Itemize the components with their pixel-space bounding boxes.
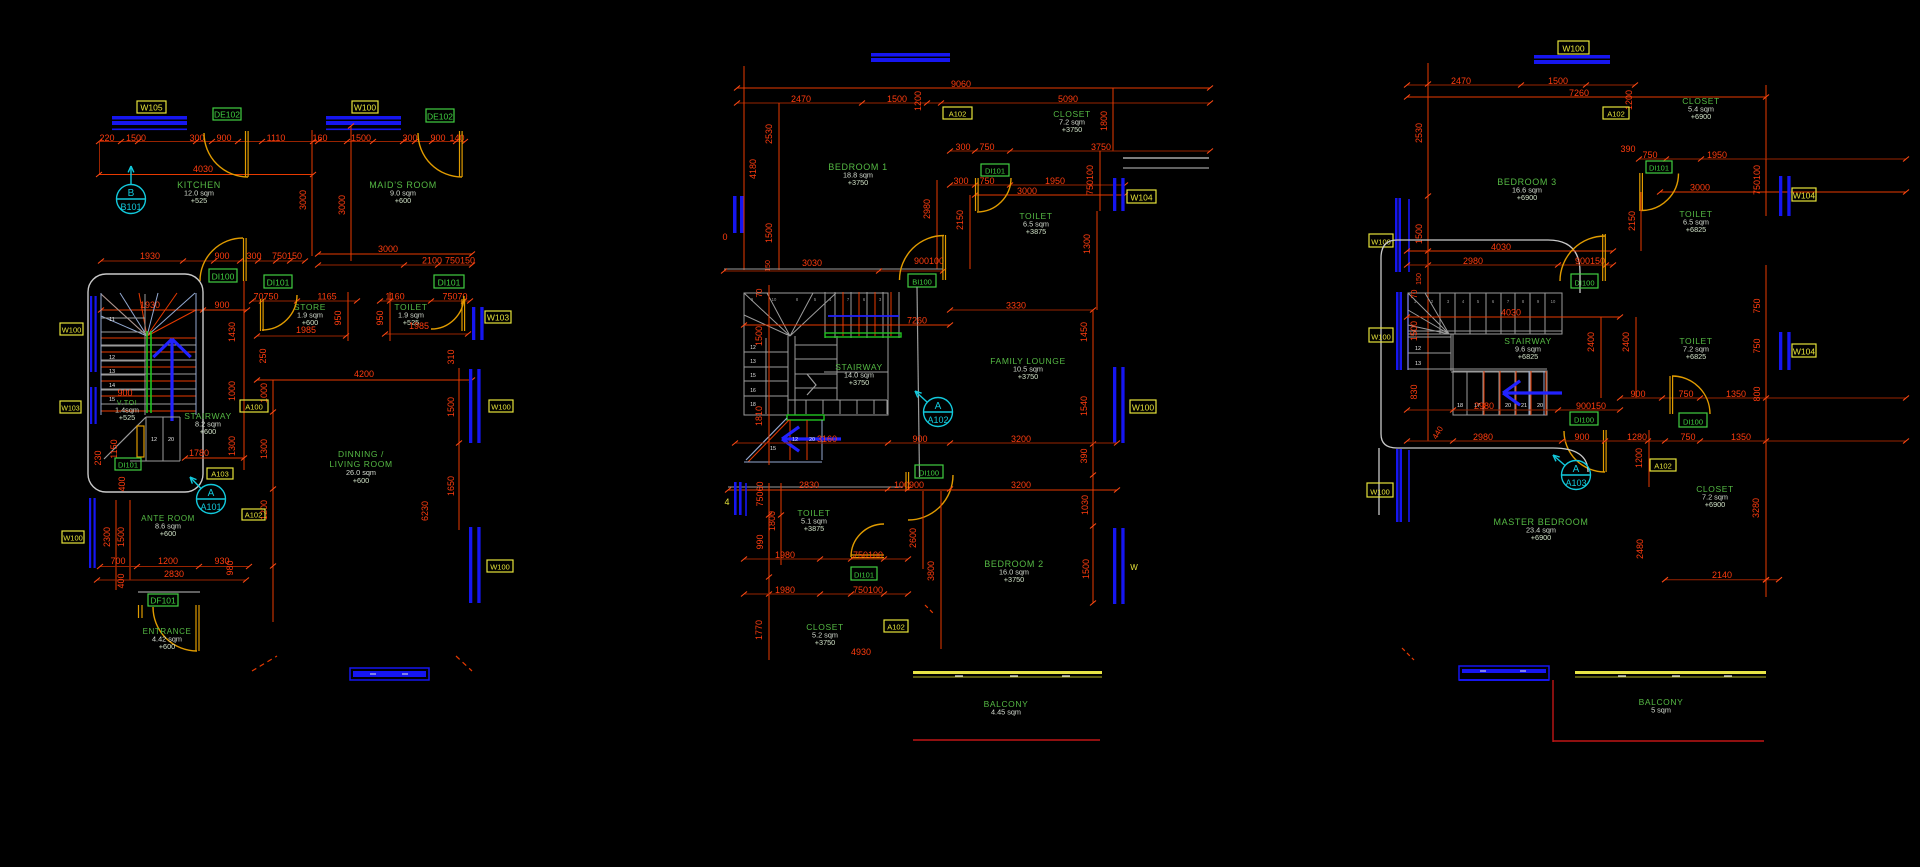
svg-text:1500: 1500: [351, 133, 371, 143]
svg-text:400: 400: [116, 573, 126, 588]
svg-text:1150: 1150: [109, 439, 119, 458]
svg-text:+3750: +3750: [848, 178, 869, 187]
svg-text:750100: 750100: [1085, 165, 1095, 195]
svg-text:750: 750: [1752, 338, 1762, 353]
svg-text:15: 15: [750, 373, 756, 379]
svg-text:3280: 3280: [1751, 498, 1761, 518]
svg-text:A103: A103: [1565, 478, 1586, 488]
svg-text:750: 750: [1678, 389, 1693, 399]
svg-text:+3750: +3750: [1018, 372, 1039, 381]
svg-text:70: 70: [755, 288, 764, 297]
svg-text:1030: 1030: [1080, 495, 1090, 515]
svg-text:+600: +600: [200, 427, 216, 436]
svg-text:250: 250: [258, 348, 268, 363]
svg-text:13: 13: [1415, 361, 1421, 367]
svg-text:DI101: DI101: [118, 461, 138, 470]
svg-text:2300: 2300: [102, 527, 112, 547]
svg-text:DI100: DI100: [212, 272, 235, 282]
svg-text:900150: 900150: [1575, 256, 1605, 266]
svg-text:DI100: DI100: [1574, 416, 1594, 425]
svg-text:+6825: +6825: [1686, 225, 1707, 234]
svg-text:2470: 2470: [791, 94, 811, 104]
svg-text:A: A: [208, 488, 215, 499]
svg-text:1810: 1810: [754, 406, 764, 426]
svg-text:9060: 9060: [951, 79, 971, 89]
svg-text:900: 900: [1630, 389, 1645, 399]
svg-text:3000: 3000: [298, 190, 308, 210]
svg-text:100900: 100900: [894, 480, 924, 490]
svg-text:1280: 1280: [1627, 432, 1647, 442]
svg-text:1950: 1950: [1045, 176, 1065, 186]
svg-text:1800: 1800: [767, 511, 777, 531]
svg-text:3750: 3750: [1091, 142, 1111, 152]
svg-text:+3750: +3750: [815, 638, 836, 647]
svg-text:W100: W100: [1370, 488, 1390, 497]
svg-text:1770: 1770: [754, 620, 764, 640]
svg-text:3800: 3800: [926, 561, 936, 581]
svg-text:750: 750: [979, 142, 994, 152]
svg-text:A: A: [1573, 464, 1580, 475]
svg-text:W105: W105: [140, 103, 162, 113]
svg-text:3330: 3330: [1006, 301, 1026, 311]
svg-text:1500: 1500: [887, 94, 907, 104]
svg-text:20: 20: [809, 437, 815, 443]
svg-text:1200: 1200: [913, 91, 923, 111]
svg-text:+525: +525: [119, 413, 135, 422]
svg-text:10: 10: [1551, 299, 1556, 304]
svg-text:3000: 3000: [378, 244, 398, 254]
svg-text:1000: 1000: [227, 381, 237, 401]
svg-text:DI101: DI101: [985, 167, 1005, 176]
svg-text:1450: 1450: [1079, 322, 1089, 342]
svg-text:900: 900: [1574, 432, 1589, 442]
svg-text:1110: 1110: [267, 133, 286, 143]
svg-text:1980: 1980: [775, 550, 795, 560]
svg-text:16: 16: [750, 388, 756, 394]
svg-text:A102: A102: [927, 415, 948, 425]
svg-text:DI101: DI101: [267, 278, 290, 288]
svg-text:1980: 1980: [775, 585, 795, 595]
svg-text:1350: 1350: [1726, 389, 1746, 399]
svg-text:230: 230: [93, 450, 103, 465]
svg-text:DI100: DI100: [919, 469, 939, 478]
svg-text:400: 400: [117, 476, 127, 491]
svg-text:13: 13: [109, 369, 115, 375]
svg-text:950: 950: [333, 310, 343, 325]
svg-text:1165: 1165: [317, 292, 336, 302]
svg-text:A102: A102: [949, 110, 967, 119]
svg-text:3000: 3000: [1690, 183, 1710, 193]
svg-text:15: 15: [770, 446, 776, 452]
svg-text:1800: 1800: [1099, 111, 1109, 131]
svg-text:950: 950: [375, 310, 385, 325]
svg-text:3200: 3200: [1011, 434, 1031, 444]
svg-text:1350: 1350: [1731, 432, 1751, 442]
svg-text:DI100: DI100: [1683, 418, 1703, 427]
svg-text:+6900: +6900: [1517, 193, 1538, 202]
svg-text:21: 21: [1521, 403, 1527, 409]
svg-text:12: 12: [1415, 346, 1421, 352]
svg-text:2980: 2980: [922, 199, 932, 219]
svg-text:1430: 1430: [227, 322, 237, 342]
svg-text:2530: 2530: [1414, 123, 1424, 143]
svg-text:+3875: +3875: [804, 524, 825, 533]
svg-text:7260: 7260: [1569, 88, 1589, 98]
svg-text:DINNING /: DINNING /: [338, 449, 384, 459]
svg-text:2400: 2400: [1586, 332, 1596, 352]
svg-text:W103: W103: [487, 313, 509, 323]
svg-text:A103: A103: [211, 470, 229, 479]
svg-text:4030: 4030: [1491, 242, 1511, 252]
svg-text:+3750: +3750: [849, 378, 870, 387]
svg-text:A101: A101: [200, 502, 221, 512]
svg-text:+600: +600: [159, 642, 175, 651]
svg-text:1500: 1500: [446, 397, 456, 417]
svg-text:75060: 75060: [755, 481, 765, 506]
svg-text:4930: 4930: [851, 647, 871, 657]
svg-text:DI101: DI101: [1649, 164, 1669, 173]
svg-text:300: 300: [189, 133, 204, 143]
svg-text:1500: 1500: [1409, 321, 1419, 341]
svg-text:1500: 1500: [116, 527, 126, 547]
svg-text:+6900: +6900: [1705, 500, 1726, 509]
svg-text:+525: +525: [191, 196, 207, 205]
svg-text:A102: A102: [245, 511, 263, 520]
svg-text:900100: 900100: [914, 256, 944, 266]
svg-text:W100: W100: [354, 103, 376, 113]
svg-text:2140: 2140: [1712, 570, 1732, 580]
svg-text:1500: 1500: [126, 133, 146, 143]
svg-text:300: 300: [953, 176, 968, 186]
svg-text:1200: 1200: [1634, 448, 1644, 468]
svg-text:12: 12: [792, 437, 798, 443]
svg-text:20: 20: [168, 437, 174, 443]
svg-text:11: 11: [109, 317, 115, 323]
svg-text:DE102: DE102: [427, 112, 453, 122]
svg-text:W104: W104: [1793, 347, 1815, 357]
svg-text:4: 4: [724, 497, 729, 507]
svg-text:70750: 70750: [253, 292, 278, 302]
svg-text:750100: 750100: [853, 585, 883, 595]
svg-text:5090: 5090: [1058, 94, 1078, 104]
svg-text:700: 700: [110, 556, 125, 566]
svg-text:DF101: DF101: [150, 596, 176, 606]
svg-text:+3750: +3750: [1004, 575, 1025, 584]
svg-text:750: 750: [1642, 150, 1657, 160]
svg-text:2530: 2530: [764, 124, 774, 144]
svg-text:1200: 1200: [158, 556, 178, 566]
svg-text:1300: 1300: [259, 439, 269, 459]
svg-text:2100: 2100: [422, 256, 442, 266]
svg-text:1985: 1985: [409, 321, 429, 331]
svg-text:750: 750: [1752, 298, 1762, 313]
svg-text:900: 900: [214, 251, 229, 261]
svg-text:3000: 3000: [1017, 186, 1037, 196]
svg-text:900: 900: [214, 300, 229, 310]
svg-text:70: 70: [1410, 289, 1419, 298]
svg-text:DI101: DI101: [438, 278, 461, 288]
svg-text:160: 160: [312, 133, 327, 143]
svg-text:10: 10: [772, 297, 777, 302]
svg-text:13: 13: [750, 359, 756, 365]
svg-text:+600: +600: [353, 476, 369, 485]
svg-text:750: 750: [979, 176, 994, 186]
svg-text:900: 900: [216, 133, 231, 143]
svg-text:1950: 1950: [1707, 150, 1727, 160]
svg-text:1500: 1500: [1081, 559, 1091, 579]
svg-text:B: B: [128, 188, 135, 199]
svg-text:12: 12: [151, 437, 157, 443]
svg-text:20: 20: [1505, 403, 1511, 409]
svg-text:1500: 1500: [1414, 224, 1424, 244]
svg-text:1985: 1985: [296, 325, 316, 335]
svg-text:W100: W100: [491, 403, 511, 412]
svg-text:+600: +600: [395, 196, 411, 205]
svg-text:900150: 900150: [1576, 401, 1606, 411]
svg-text:DI100: DI100: [1574, 279, 1594, 288]
svg-text:4030: 4030: [1501, 308, 1521, 318]
svg-text:900: 900: [912, 434, 927, 444]
svg-text:20: 20: [1537, 403, 1543, 409]
svg-text:W: W: [1130, 563, 1138, 572]
svg-text:A102: A102: [887, 623, 905, 632]
svg-text:1930: 1930: [140, 251, 160, 261]
svg-text:1500: 1500: [754, 326, 764, 346]
svg-text:2150: 2150: [955, 210, 965, 230]
svg-text:+600: +600: [160, 529, 176, 538]
svg-text:900: 900: [117, 388, 132, 398]
svg-text:750150: 750150: [445, 256, 475, 266]
svg-text:2830: 2830: [799, 480, 819, 490]
svg-text:W100: W100: [62, 326, 82, 335]
svg-text:3000: 3000: [337, 195, 347, 215]
svg-text:150: 150: [765, 260, 772, 272]
svg-text:800: 800: [1752, 386, 1762, 401]
svg-text:2830: 2830: [164, 569, 184, 579]
svg-text:4030: 4030: [193, 164, 213, 174]
svg-text:750: 750: [1680, 432, 1695, 442]
svg-text:750100: 750100: [1752, 165, 1762, 195]
svg-text:4180: 4180: [748, 159, 758, 179]
svg-text:980: 980: [225, 560, 235, 575]
svg-text:310: 310: [446, 349, 456, 364]
svg-text:+6900: +6900: [1691, 112, 1712, 121]
svg-text:W103: W103: [61, 406, 79, 413]
svg-text:300: 300: [402, 133, 417, 143]
svg-text:18: 18: [1457, 403, 1463, 409]
svg-text:2980: 2980: [1473, 432, 1493, 442]
svg-text:W100: W100: [1371, 333, 1391, 342]
svg-text:+6900: +6900: [1531, 533, 1552, 542]
svg-text:1650: 1650: [446, 476, 456, 496]
svg-text:1160: 1160: [385, 292, 404, 302]
svg-text:150: 150: [1416, 273, 1423, 285]
svg-text:1540: 1540: [1079, 396, 1089, 416]
svg-text:12: 12: [109, 355, 115, 361]
svg-text:2150: 2150: [1627, 211, 1637, 231]
svg-text:390: 390: [1620, 144, 1635, 154]
svg-text:2980: 2980: [1474, 401, 1494, 411]
svg-text:2600: 2600: [908, 528, 918, 548]
svg-text:5 sqm: 5 sqm: [1651, 706, 1671, 715]
svg-text:A: A: [935, 401, 942, 412]
svg-text:A100: A100: [245, 403, 263, 412]
svg-text:1300: 1300: [227, 436, 237, 456]
svg-text:W100: W100: [490, 563, 510, 572]
svg-text:W100: W100: [1562, 44, 1584, 54]
svg-text:A102: A102: [1654, 462, 1672, 471]
svg-text:220: 220: [99, 133, 114, 143]
svg-text:+3750: +3750: [1062, 125, 1083, 134]
svg-text:1930: 1930: [140, 300, 160, 310]
svg-text:3200: 3200: [1011, 480, 1031, 490]
svg-text:W100: W100: [63, 534, 83, 543]
svg-text:300: 300: [246, 251, 261, 261]
svg-text:W104: W104: [1793, 191, 1815, 201]
svg-text:+6825: +6825: [1518, 352, 1539, 361]
svg-text:7260: 7260: [907, 316, 927, 326]
svg-text:1500: 1500: [764, 223, 774, 243]
svg-text:15: 15: [109, 397, 115, 403]
svg-text:2400: 2400: [1621, 332, 1631, 352]
svg-text:W104: W104: [1130, 193, 1152, 203]
svg-text:B101: B101: [120, 202, 141, 212]
svg-text:A102: A102: [1607, 110, 1625, 119]
svg-text:830: 830: [1409, 384, 1419, 399]
svg-text:750100: 750100: [853, 550, 883, 560]
svg-text:990: 990: [755, 534, 765, 549]
svg-text:1780: 1780: [189, 448, 209, 458]
svg-text:DE102: DE102: [214, 110, 240, 120]
svg-text:14: 14: [109, 383, 115, 389]
svg-text:4200: 4200: [354, 369, 374, 379]
svg-text:390: 390: [1079, 448, 1089, 463]
svg-text:900: 900: [430, 133, 445, 143]
svg-text:6230: 6230: [420, 501, 430, 521]
svg-text:W100: W100: [1132, 403, 1154, 413]
svg-text:2480: 2480: [1635, 539, 1645, 559]
svg-text:3030: 3030: [802, 258, 822, 268]
svg-text:+3875: +3875: [1026, 227, 1047, 236]
svg-text:300: 300: [955, 142, 970, 152]
svg-text:2980: 2980: [1463, 256, 1483, 266]
svg-text:+6825: +6825: [1686, 352, 1707, 361]
svg-text:2470: 2470: [1451, 76, 1471, 86]
svg-text:DI101: DI101: [854, 571, 874, 580]
svg-text:1300: 1300: [1082, 234, 1092, 254]
svg-text:750150: 750150: [272, 251, 302, 261]
svg-text:4.45 sqm: 4.45 sqm: [991, 708, 1021, 717]
svg-text:0: 0: [722, 232, 727, 242]
svg-text:BI100: BI100: [912, 278, 932, 287]
svg-text:1500: 1500: [1548, 76, 1568, 86]
